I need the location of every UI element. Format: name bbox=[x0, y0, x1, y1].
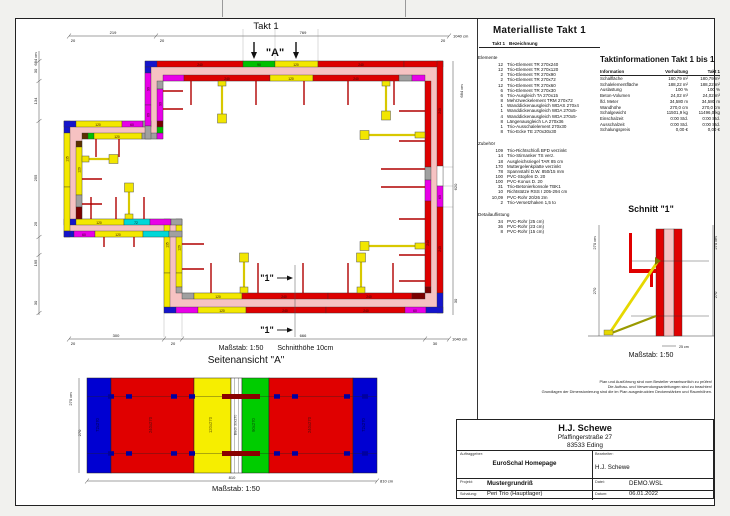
taktinfo-title: Taktinformationen Takt 1 bis 1 bbox=[600, 55, 720, 64]
group-zubehoer: Zubehör bbox=[478, 141, 602, 146]
svg-text:240: 240 bbox=[197, 63, 203, 67]
svg-text:120: 120 bbox=[114, 135, 120, 139]
svg-text:120: 120 bbox=[77, 167, 81, 173]
richtstuetze-brace bbox=[604, 257, 661, 335]
projekt-label: Projekt: bbox=[460, 480, 473, 484]
dim-right: 684 cm 620 30 bbox=[453, 61, 464, 315]
svg-text:"1": "1" bbox=[260, 325, 274, 335]
svg-text:20: 20 bbox=[71, 341, 76, 346]
col-desc: Bezeichnung bbox=[509, 41, 538, 46]
datei-label: Datei: bbox=[595, 480, 605, 484]
svg-text:30: 30 bbox=[433, 341, 438, 346]
datei-value: DEMO.WSL bbox=[629, 480, 663, 487]
svg-text:120: 120 bbox=[177, 245, 181, 251]
svg-text:120: 120 bbox=[288, 77, 294, 81]
svg-text:240: 240 bbox=[363, 309, 369, 313]
taktinfo-rows: Schalfläche 180,79 m² 180,79 m² Schalele… bbox=[600, 76, 720, 133]
svg-text:240: 240 bbox=[438, 108, 442, 114]
bearbeiter-label: Bearbeiter: bbox=[595, 452, 614, 456]
svg-text:120: 120 bbox=[96, 221, 102, 225]
taktinformationen: Taktinformationen Takt 1 bis 1 Informati… bbox=[600, 55, 720, 133]
disclaimer: Plan und Ausführung sind vom Besteller v… bbox=[396, 380, 712, 394]
svg-text:60: 60 bbox=[82, 233, 86, 237]
svg-text:810: 810 bbox=[229, 475, 236, 480]
svg-text:240x270: 240x270 bbox=[148, 416, 153, 433]
title-block: H.J. Schewe Pfaffingerstraße 27 83533 Ed… bbox=[456, 419, 714, 499]
svg-text:195: 195 bbox=[33, 259, 38, 266]
crop-mark bbox=[405, 0, 406, 17]
svg-text:60: 60 bbox=[413, 309, 417, 313]
svg-text:90: 90 bbox=[257, 63, 261, 67]
group-zubehoer-items: 109Trio-Richtschloß BFD verzinkt 14Trio-… bbox=[477, 148, 602, 205]
svg-text:60: 60 bbox=[130, 123, 134, 127]
svg-text:270: 270 bbox=[713, 291, 718, 298]
svg-text:72: 72 bbox=[134, 221, 138, 225]
schalung-label: Schalung: bbox=[460, 492, 477, 496]
svg-text:Blech 30x270: Blech 30x270 bbox=[234, 415, 238, 436]
svg-text:30: 30 bbox=[453, 298, 458, 303]
material-row: 8Trio-Ecke TE 270x30x30 bbox=[477, 129, 602, 134]
svg-text:120: 120 bbox=[215, 295, 221, 299]
floor-plan: 20 219 20 769 20 1040 cm "A" bbox=[16, 19, 478, 364]
bearbeiter-value: H.J. Schewe bbox=[595, 464, 630, 471]
svg-text:684 cm: 684 cm bbox=[33, 52, 38, 66]
projekt-value: Mustergrundriß bbox=[487, 480, 533, 487]
plan-schnitthoehe: Schnitthöhe 10cm bbox=[277, 345, 333, 352]
svg-text:134: 134 bbox=[33, 97, 38, 104]
company-name: H.J. Schewe bbox=[457, 423, 713, 433]
drawing-sheet: Takt 1 20 219 20 769 20 1040 cm "A" bbox=[15, 18, 715, 506]
svg-text:20: 20 bbox=[160, 38, 165, 43]
svg-text:270 cm: 270 cm bbox=[68, 392, 73, 406]
svg-text:135: 135 bbox=[165, 242, 169, 248]
svg-text:90: 90 bbox=[158, 102, 162, 106]
taktinfo-row: Schalungspreis 0,00 € 0,00 € bbox=[600, 127, 720, 133]
svg-text:240: 240 bbox=[438, 246, 442, 252]
svg-text:120: 120 bbox=[95, 123, 101, 127]
svg-text:135: 135 bbox=[65, 156, 69, 162]
svg-text:240: 240 bbox=[353, 77, 359, 81]
svg-text:120x270: 120x270 bbox=[208, 416, 213, 433]
svg-text:25: 25 bbox=[33, 221, 38, 226]
schnitt-title: Schnitt "1" bbox=[576, 204, 726, 214]
svg-text:255: 255 bbox=[33, 174, 38, 181]
elevation-panels bbox=[87, 378, 377, 473]
svg-text:270 cm: 270 cm bbox=[592, 236, 597, 250]
svg-text:1040 cm: 1040 cm bbox=[453, 34, 469, 39]
schnitt-drawing: 270 cm 270 270 cm 270 25 cm bbox=[576, 217, 726, 365]
col-qty: Takt 1 bbox=[479, 41, 509, 46]
datum-value: 06.01.2022 bbox=[629, 491, 658, 497]
svg-text:769: 769 bbox=[300, 30, 307, 35]
datum-label: Datum: bbox=[595, 492, 607, 496]
plan-massstab: Maßstab: 1:50 bbox=[219, 345, 264, 352]
svg-text:20: 20 bbox=[441, 38, 446, 43]
svg-text:30: 30 bbox=[33, 68, 38, 73]
materialliste: Materialliste Takt 1 Takt 1 Bezeichnung … bbox=[477, 25, 602, 234]
auftraggeber-label: Auftraggeber: bbox=[460, 452, 483, 456]
group-elemente: Elemente bbox=[478, 55, 602, 60]
svg-text:270: 270 bbox=[592, 287, 597, 294]
svg-text:90: 90 bbox=[146, 87, 150, 91]
svg-text:240: 240 bbox=[282, 309, 288, 313]
screenshot-root: { "sheet": { "takt_title": "Takt 1" }, "… bbox=[0, 0, 730, 516]
schnitt-wall bbox=[656, 229, 682, 336]
svg-text:810 cm: 810 cm bbox=[380, 479, 394, 484]
svg-text:270: 270 bbox=[77, 429, 82, 436]
svg-text:72x270: 72x270 bbox=[95, 417, 100, 431]
svg-text:240: 240 bbox=[366, 295, 372, 299]
svg-text:240: 240 bbox=[358, 63, 364, 67]
svg-text:240: 240 bbox=[426, 240, 430, 246]
svg-text:300: 300 bbox=[113, 333, 120, 338]
brace-pads bbox=[82, 81, 425, 293]
crop-mark bbox=[222, 0, 223, 17]
materialliste-header: Takt 1 Bezeichnung bbox=[479, 41, 600, 48]
company-street: Pfaffingerstraße 27 bbox=[457, 434, 713, 441]
svg-text:684 cm: 684 cm bbox=[459, 84, 464, 98]
svg-text:219: 219 bbox=[110, 30, 117, 35]
auftraggeber-value: EuroSchal Homepage bbox=[457, 460, 592, 467]
svg-text:20: 20 bbox=[71, 38, 76, 43]
materialliste-title: Materialliste Takt 1 bbox=[477, 25, 602, 36]
svg-text:620: 620 bbox=[453, 183, 458, 190]
schalung-value: Peri Trio (Hauptlager) bbox=[487, 491, 542, 497]
company-city: 83533 Eding bbox=[457, 442, 713, 449]
group-elemente-items: 12Trio-Element TR 270x240 12Trio-Element… bbox=[477, 62, 602, 134]
svg-text:270 cm: 270 cm bbox=[713, 236, 718, 250]
svg-text:1040 cm: 1040 cm bbox=[452, 337, 468, 342]
svg-text:72x270: 72x270 bbox=[361, 417, 366, 431]
dim-top bbox=[67, 34, 451, 39]
seitenansicht-title: Seitenansicht "A" bbox=[151, 355, 341, 366]
svg-text:120: 120 bbox=[115, 233, 121, 237]
svg-text:25 cm: 25 cm bbox=[679, 345, 689, 349]
dim-left: 684 cm 30 134 255 25 195 30 bbox=[33, 51, 42, 315]
svg-text:120: 120 bbox=[293, 63, 299, 67]
betonierkonsole bbox=[629, 233, 656, 287]
svg-text:120: 120 bbox=[219, 309, 225, 313]
elevation-massstab: Maßstab: 1:50 bbox=[126, 484, 346, 493]
plan-scale-line: Maßstab: 1:50 Schnitthöhe 10cm bbox=[136, 345, 416, 352]
svg-text:90x270: 90x270 bbox=[251, 417, 256, 431]
disclaimer-line: Grundlagen der Dimensionierung sind die … bbox=[396, 390, 712, 395]
svg-text:60: 60 bbox=[146, 113, 150, 117]
taktinfo-header: Information Vorhaltung Takt 1 bbox=[600, 69, 720, 76]
svg-text:"1": "1" bbox=[260, 273, 274, 283]
svg-text:240x270: 240x270 bbox=[307, 416, 312, 433]
schnitt-massstab: Maßstab: 1:50 bbox=[591, 352, 711, 359]
svg-text:240: 240 bbox=[281, 295, 287, 299]
svg-text:666: 666 bbox=[300, 333, 307, 338]
svg-text:30: 30 bbox=[33, 300, 38, 305]
svg-text:60: 60 bbox=[438, 195, 442, 199]
svg-text:240: 240 bbox=[224, 77, 230, 81]
